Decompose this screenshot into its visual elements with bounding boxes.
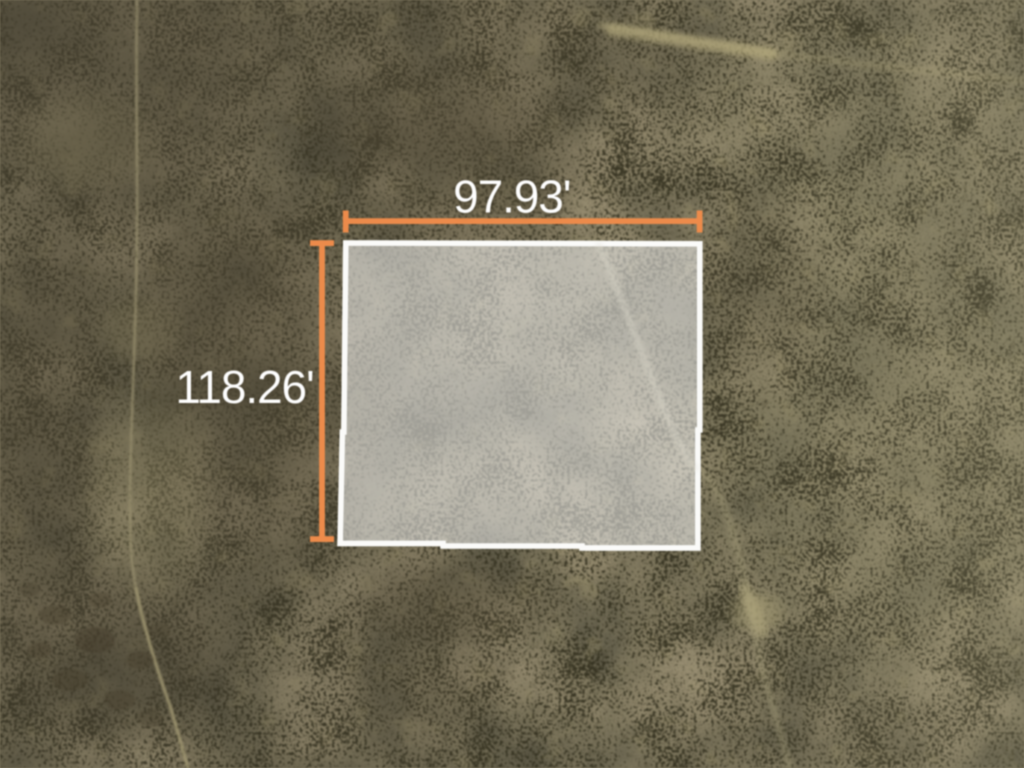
svg-text:118.26': 118.26' — [175, 361, 313, 413]
svg-text:97.93': 97.93' — [453, 171, 570, 223]
